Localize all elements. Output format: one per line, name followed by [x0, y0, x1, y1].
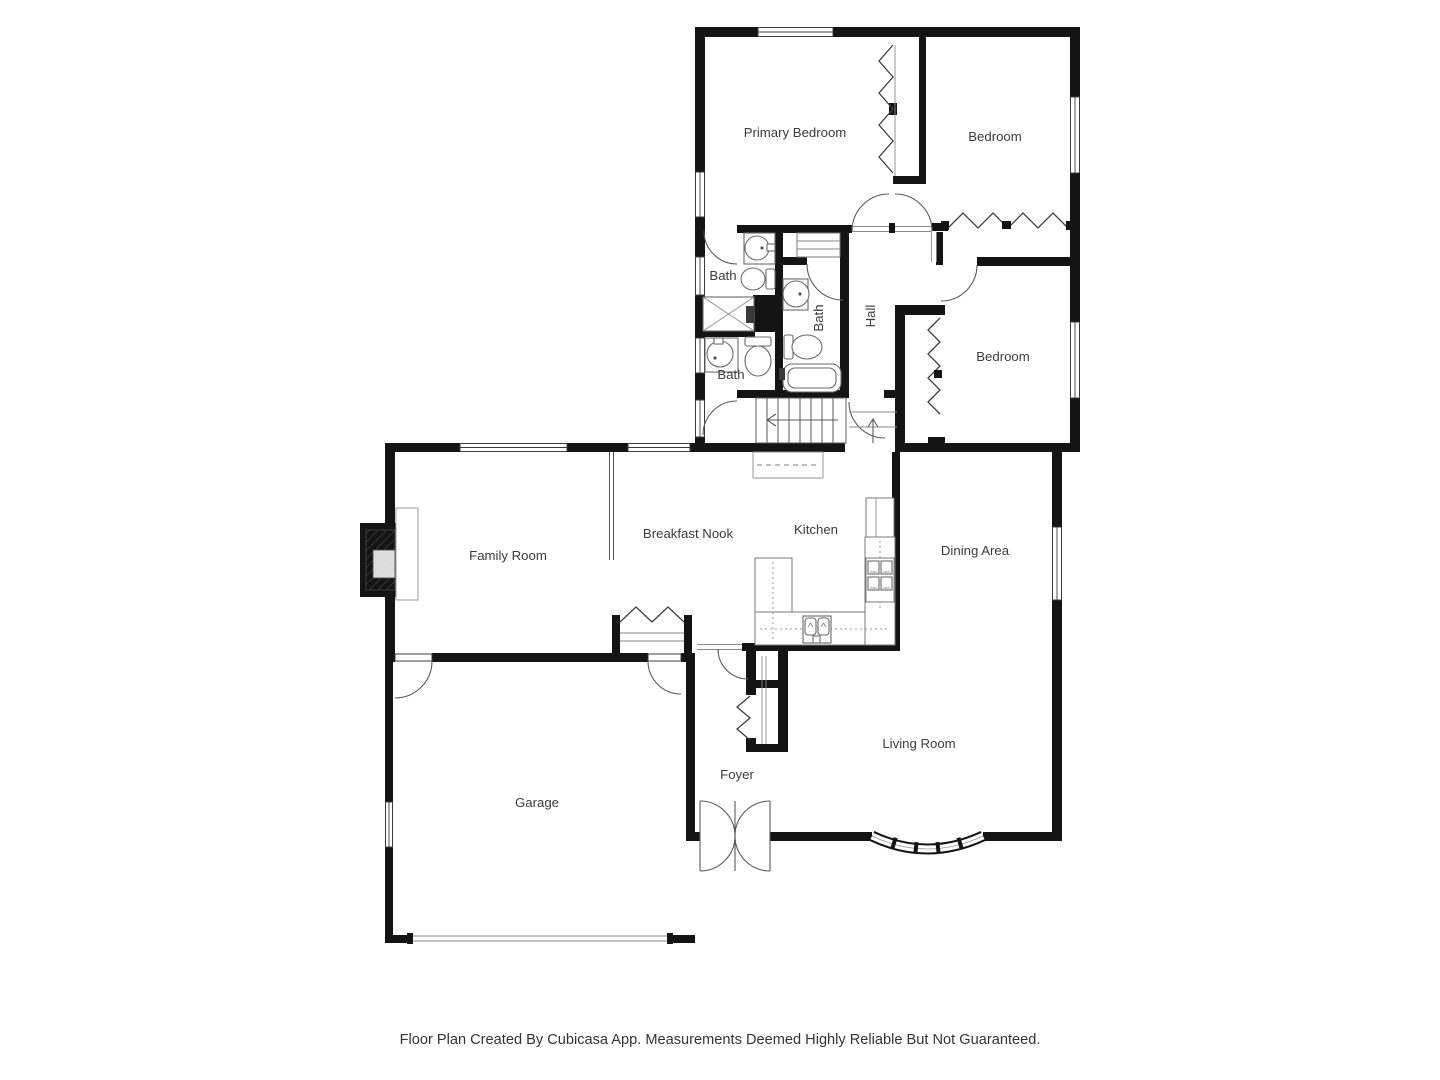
- window: [1071, 97, 1080, 173]
- window: [386, 802, 393, 847]
- garage-left-door-arc: [395, 661, 432, 698]
- room-label-primary-bedroom: Primary Bedroom: [744, 125, 847, 140]
- refrigerator-icon: [866, 498, 894, 537]
- room-label-family-room: Family Room: [469, 548, 547, 563]
- kitchen-fixtures: [755, 498, 895, 645]
- floor-plan-canvas: Primary Bedroom Bedroom Bath Bath Hall B…: [0, 0, 1440, 1080]
- steps-to-kitchen: [849, 412, 897, 443]
- room-label-hall: Hall: [863, 305, 878, 328]
- bedroom-right-door-arc: [941, 265, 977, 301]
- bay-window: [872, 836, 983, 853]
- room-label-bedroom-top: Bedroom: [968, 129, 1022, 144]
- room-label-bath-lower: Bath: [717, 367, 744, 382]
- bathtub-icon: [779, 364, 841, 392]
- window: [696, 257, 705, 295]
- sink-icon: [783, 279, 809, 310]
- sink-icon: [744, 233, 775, 264]
- footer-disclaimer: Floor Plan Created By Cubicasa App. Meas…: [0, 1032, 1440, 1048]
- toilet-icon: [745, 337, 771, 376]
- primary-bedroom-door-arc: [852, 194, 889, 231]
- bath-upper-door-arc: [704, 231, 737, 264]
- window: [696, 172, 705, 217]
- partitions: [610, 452, 614, 560]
- room-label-kitchen: Kitchen: [794, 522, 838, 537]
- stove-icon: [866, 558, 894, 602]
- garage-right-door-arc: [648, 661, 681, 694]
- windows: [386, 28, 1080, 848]
- foyer-closet-bifold: [737, 696, 750, 740]
- floor-plan-page: Primary Bedroom Bedroom Bath Bath Hall B…: [0, 0, 1440, 1080]
- bedroom-top-door-arc: [895, 194, 932, 231]
- room-label-dining-area: Dining Area: [941, 543, 1010, 558]
- window: [1071, 322, 1080, 398]
- hearth: [396, 508, 418, 600]
- bath-lower-door-arc: [703, 401, 737, 435]
- hall-landing-door-arc: [849, 402, 885, 438]
- window: [696, 338, 705, 373]
- linen-closet: [797, 233, 840, 257]
- room-label-living-room: Living Room: [882, 736, 955, 751]
- walls-lower-level: [385, 651, 1062, 943]
- front-double-door: [700, 801, 770, 871]
- stairs: [753, 398, 897, 478]
- bath-mid-door-arc: [807, 264, 843, 300]
- window: [1053, 527, 1062, 600]
- window: [758, 28, 833, 37]
- room-label-bath-mid: Bath: [811, 304, 826, 331]
- garage-door: [407, 933, 673, 944]
- family-closet-bifold: [620, 607, 684, 622]
- toilet-icon: [784, 335, 822, 359]
- bedroom-right-closet-bifold: [928, 318, 940, 414]
- room-label-bath-upper: Bath: [709, 268, 736, 283]
- room-label-foyer: Foyer: [720, 767, 754, 782]
- foyer-closet-door-arc: [718, 649, 748, 679]
- room-label-garage: Garage: [515, 795, 559, 810]
- room-label-breakfast-nook: Breakfast Nook: [643, 526, 734, 541]
- toilet-icon: [741, 268, 775, 290]
- kitchen-sink-icon: [803, 616, 831, 643]
- window: [628, 444, 690, 452]
- shower-icon: [703, 297, 754, 331]
- room-label-bedroom-right: Bedroom: [976, 349, 1030, 364]
- window: [460, 444, 567, 452]
